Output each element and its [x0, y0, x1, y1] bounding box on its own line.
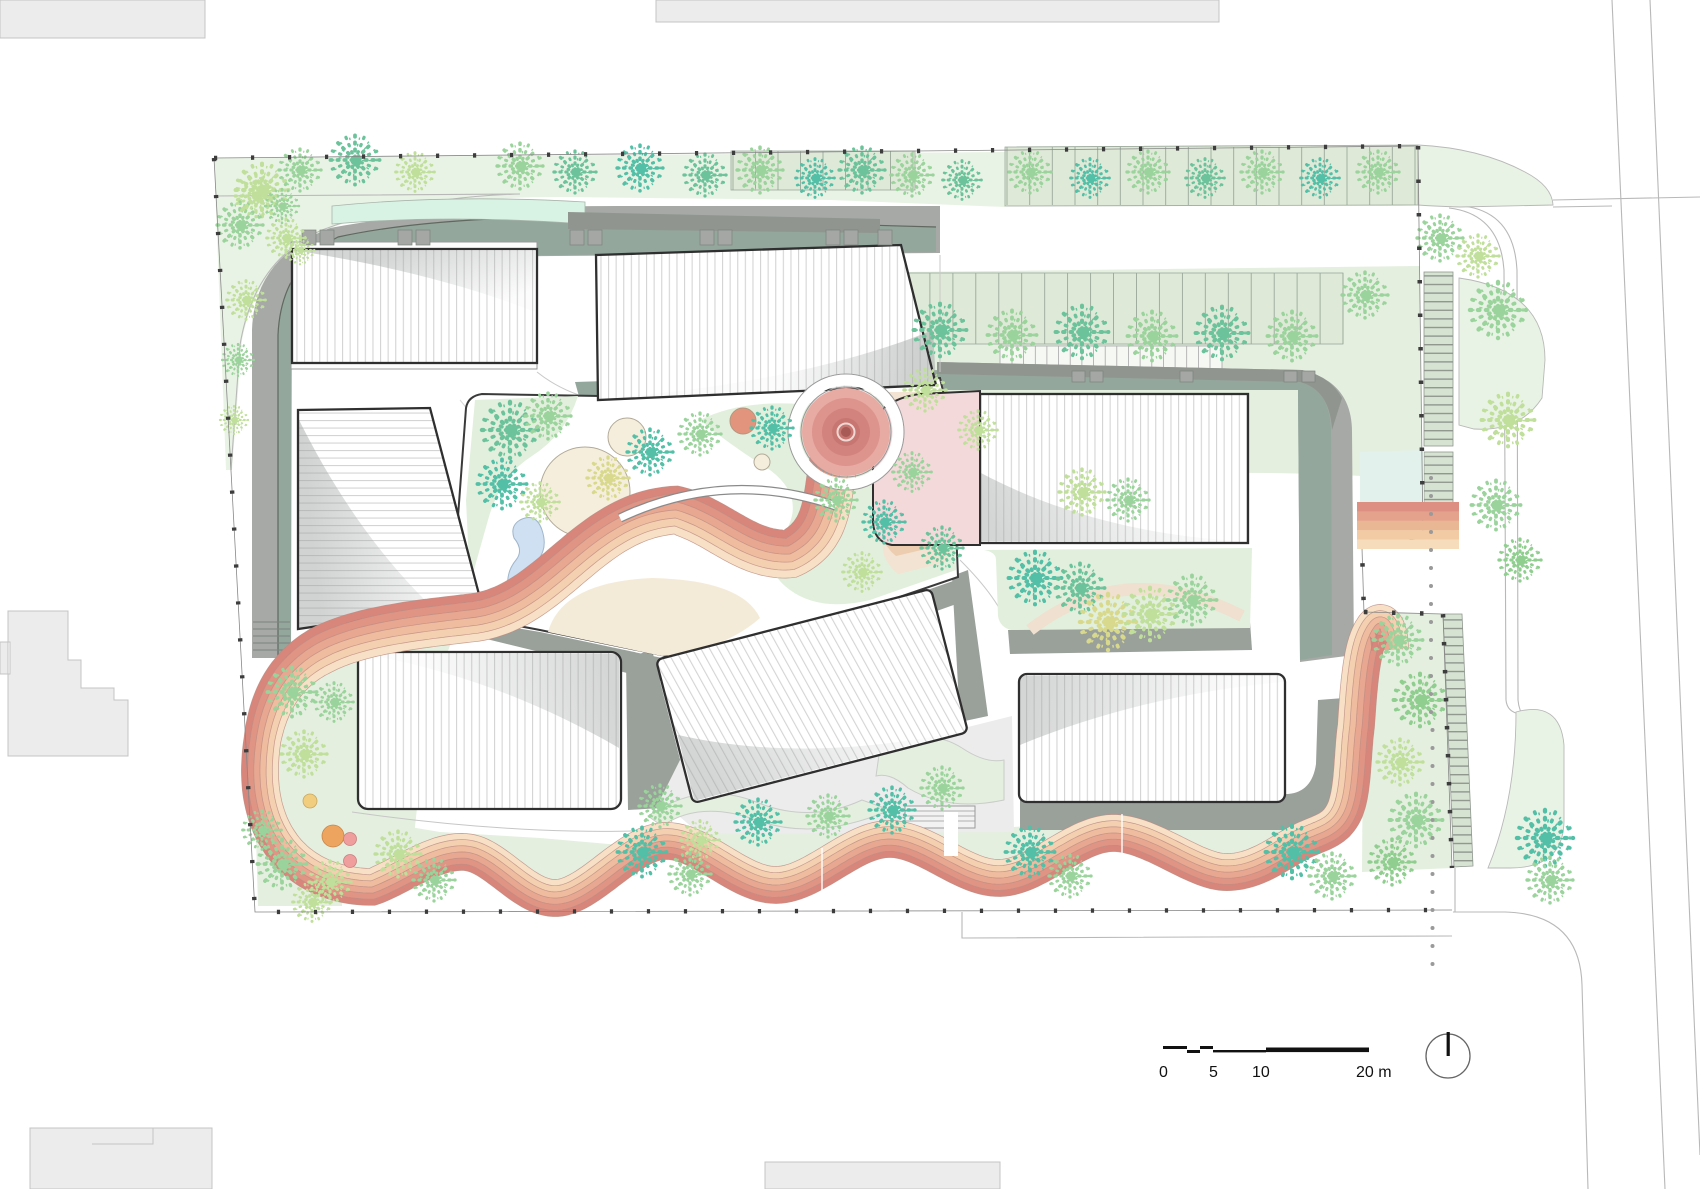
svg-text:5: 5	[1209, 1064, 1218, 1081]
svg-text:10: 10	[1252, 1064, 1270, 1081]
svg-text:20 m: 20 m	[1356, 1064, 1392, 1081]
svg-text:0: 0	[1159, 1064, 1168, 1081]
